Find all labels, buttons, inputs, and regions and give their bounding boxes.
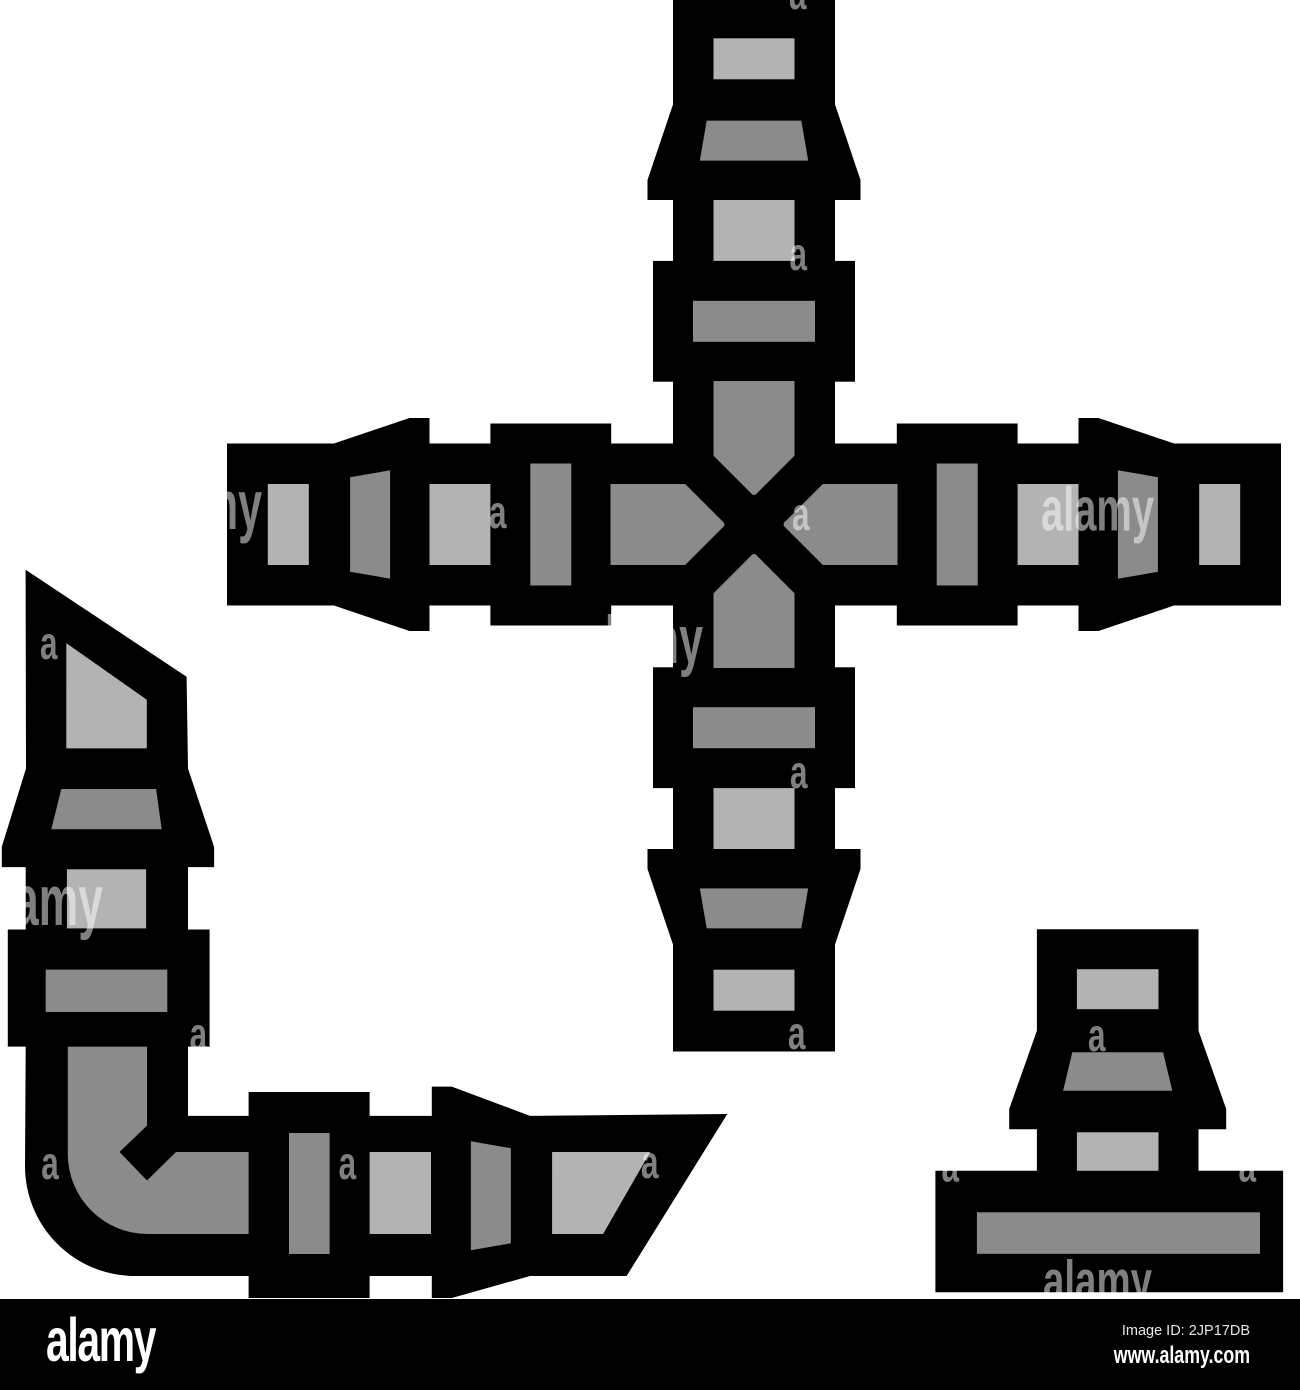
svg-text:a: a xyxy=(40,617,58,669)
svg-text:a: a xyxy=(1088,1009,1106,1061)
svg-text:a: a xyxy=(792,488,810,540)
svg-text:a: a xyxy=(1239,1140,1257,1192)
svg-text:a: a xyxy=(641,1136,659,1188)
svg-text:a: a xyxy=(41,1137,59,1189)
svg-text:alamy: alamy xyxy=(140,466,262,544)
svg-text:a: a xyxy=(790,746,808,798)
svg-text:a: a xyxy=(790,228,808,280)
svg-text:a: a xyxy=(789,0,807,19)
svg-text:alamy: alamy xyxy=(0,861,103,941)
svg-text:alamy: alamy xyxy=(1041,476,1154,545)
svg-text:a: a xyxy=(489,486,507,538)
svg-text:a: a xyxy=(339,1137,357,1189)
svg-text:a: a xyxy=(788,1007,806,1059)
svg-text:a: a xyxy=(190,1008,208,1060)
svg-text:alamy: alamy xyxy=(581,603,703,678)
svg-text:a: a xyxy=(942,1140,960,1192)
